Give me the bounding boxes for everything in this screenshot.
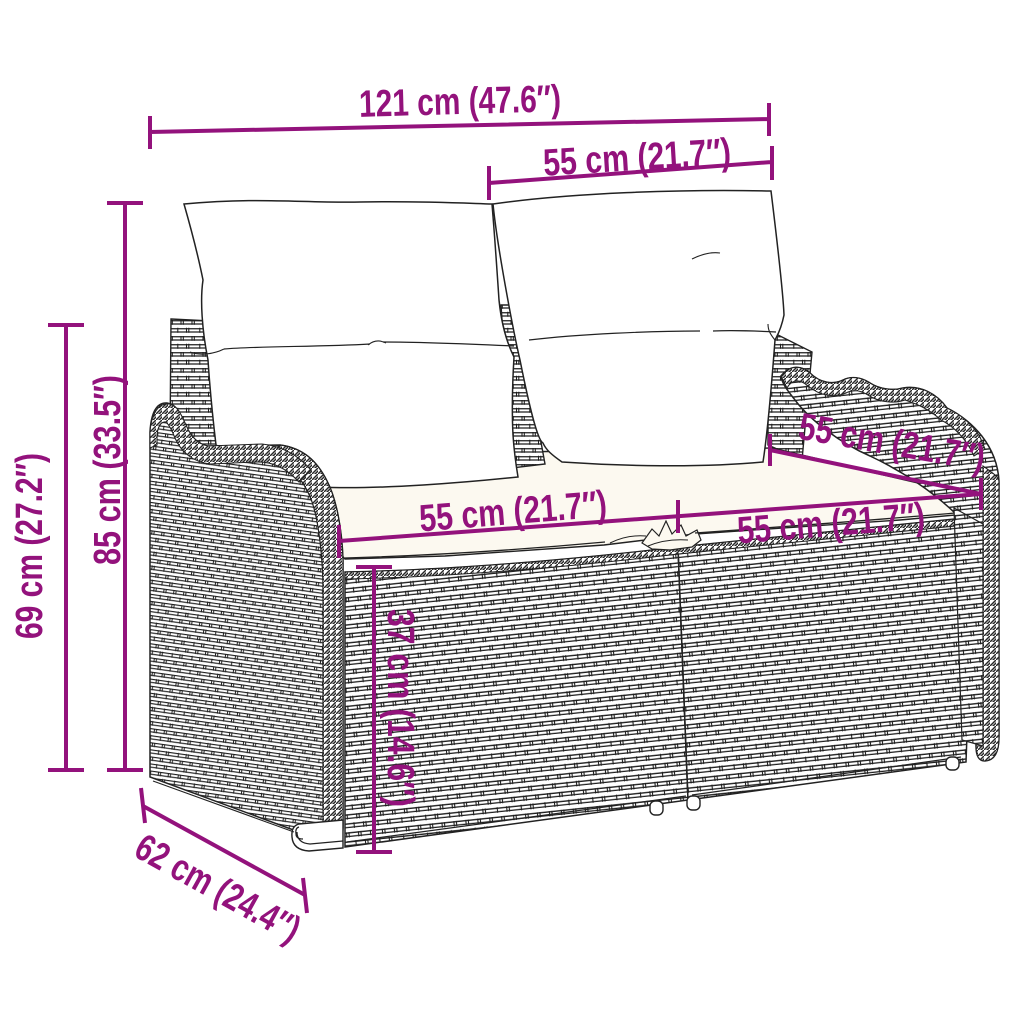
svg-text:69 cm (27.2″): 69 cm (27.2″) bbox=[9, 453, 51, 639]
svg-text:85 cm (33.5″): 85 cm (33.5″) bbox=[87, 375, 129, 565]
svg-text:121 cm (47.6″): 121 cm (47.6″) bbox=[358, 78, 561, 126]
svg-text:37 cm (14.6″): 37 cm (14.6″) bbox=[379, 609, 421, 807]
